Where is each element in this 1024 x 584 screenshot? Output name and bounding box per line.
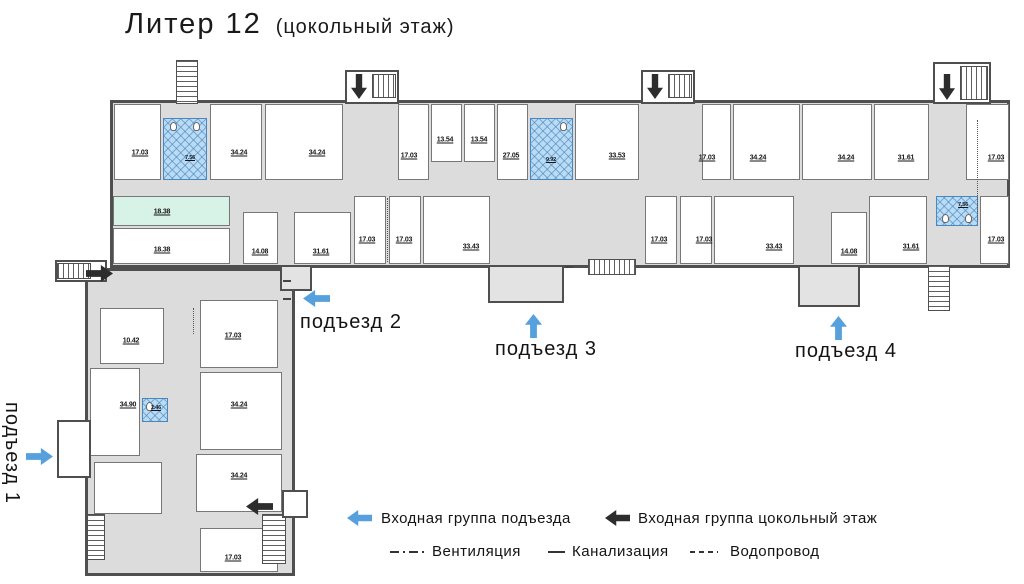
room	[831, 212, 867, 264]
room	[243, 212, 278, 264]
room-area-label: 31.61	[903, 244, 920, 251]
room	[200, 372, 282, 450]
room-area-label: 17.03	[359, 237, 376, 244]
legend-basement-entry-label: Входная группа цокольный этаж	[638, 510, 877, 527]
room	[497, 104, 528, 180]
room	[113, 228, 230, 264]
entrance-arrow-4	[830, 316, 847, 340]
room-area-label: 31.61	[898, 155, 915, 162]
vent-mark	[565, 266, 573, 268]
room	[733, 104, 800, 180]
stairs	[372, 74, 396, 98]
room-area-label: 17.03	[988, 155, 1005, 162]
room-area-label: 17.03	[988, 237, 1005, 244]
room	[398, 104, 429, 180]
room-area-label: 34.24	[231, 473, 248, 480]
room-area-label: 17.03	[225, 333, 242, 340]
entrance-label-3: подъезд 3	[495, 338, 597, 361]
entry-bay	[282, 490, 308, 518]
room	[464, 104, 495, 162]
room-area-label: 17.03	[396, 237, 413, 244]
room	[431, 104, 462, 162]
stairs	[960, 66, 988, 100]
stairs	[57, 263, 91, 279]
entrance-label-2: подъезд 2	[300, 311, 402, 334]
room-area-label: 17.03	[401, 153, 418, 160]
page-title: Литер 12 (цокольный этаж)	[125, 8, 455, 41]
sewer-line-icon	[548, 551, 565, 553]
wet-room	[163, 118, 207, 180]
room-area-label: 34.24	[231, 402, 248, 409]
water-line	[193, 308, 194, 334]
room	[874, 104, 929, 180]
water-line	[387, 198, 388, 262]
stairs	[176, 60, 198, 104]
room-area-label: 33.43	[463, 244, 480, 251]
room-area-label: 34.24	[750, 155, 767, 162]
legend-porch-entry-label: Входная группа подъезда	[381, 510, 571, 527]
room	[680, 196, 712, 264]
room	[980, 196, 1009, 264]
room	[423, 196, 490, 264]
room-area-label: 18.38	[154, 209, 171, 216]
wet-room	[530, 118, 573, 180]
room	[354, 196, 386, 264]
room-area-label: 17.03	[696, 237, 713, 244]
room-area-label: 2.46	[151, 405, 161, 411]
water-line-icon	[690, 551, 718, 553]
stairs	[87, 514, 105, 560]
room-area-label: 14.08	[841, 249, 858, 256]
room-area-label: 17.03	[132, 150, 149, 157]
entrance-arrow-3	[525, 314, 542, 338]
floor-plan-page: Литер 12 (цокольный этаж)	[0, 0, 1024, 584]
room-area-label: 14.08	[252, 249, 269, 256]
room	[57, 420, 91, 478]
room	[210, 104, 262, 180]
room	[94, 462, 162, 514]
room-area-label: 27.05	[503, 153, 520, 160]
legend-sewer-label: Канализация	[572, 543, 669, 560]
stairs	[668, 74, 692, 98]
stairs	[588, 259, 636, 275]
room-area-label: 34.24	[231, 150, 248, 157]
room	[869, 196, 927, 264]
room-area-label: 18.38	[154, 247, 171, 254]
legend-basement-arrow-icon	[605, 510, 630, 526]
room-area-label: 17.03	[651, 237, 668, 244]
room	[294, 212, 351, 264]
room	[100, 308, 164, 364]
title-main: Литер 12	[125, 8, 262, 41]
green-room	[113, 196, 230, 226]
room	[265, 104, 343, 180]
room-area-label: 33.53	[609, 153, 626, 160]
entrance-arrow-1	[26, 448, 53, 465]
room-area-label: 17.03	[225, 555, 242, 562]
water-line	[977, 120, 978, 220]
room	[702, 104, 731, 180]
room-area-label: 17.03	[699, 155, 716, 162]
vent-mark	[283, 280, 291, 282]
wet-room	[936, 196, 978, 226]
room-area-label: 7.56	[185, 155, 195, 161]
entry-vestibule-3	[488, 265, 564, 303]
room-area-label: 13.54	[437, 137, 454, 144]
room	[802, 104, 872, 180]
legend-ventilation-label: Вентиляция	[432, 543, 521, 560]
room	[645, 196, 677, 264]
title-sub: (цокольный этаж)	[276, 16, 455, 39]
room	[966, 104, 1009, 180]
room	[575, 104, 639, 180]
stairs	[262, 514, 286, 564]
room-area-label: 33.43	[766, 244, 783, 251]
stairs	[928, 265, 950, 311]
room	[114, 104, 161, 180]
room	[389, 196, 421, 264]
legend-water-label: Водопровод	[730, 543, 820, 560]
room-area-label: 31.61	[313, 249, 330, 256]
room-area-label: 13.54	[471, 137, 488, 144]
entrance-label-1: подъезд 1	[0, 402, 23, 504]
vent-mark	[283, 298, 291, 300]
room-area-label: 34.90	[120, 402, 137, 409]
room-area-label: 7.56	[958, 202, 968, 208]
room	[90, 368, 140, 456]
room-area-label: 9.92	[546, 157, 556, 163]
room	[714, 196, 794, 264]
entry-vestibule-4	[798, 265, 860, 307]
room-area-label: 34.24	[309, 150, 326, 157]
entrance-arrow-2	[303, 290, 330, 307]
legend-porch-arrow-icon	[347, 510, 372, 526]
room-area-label: 34.24	[838, 155, 855, 162]
ventilation-line-icon	[390, 551, 426, 553]
entrance-label-4: подъезд 4	[795, 340, 897, 363]
entry-vestibule-2	[280, 265, 312, 291]
room-area-label: 10.42	[123, 338, 140, 345]
